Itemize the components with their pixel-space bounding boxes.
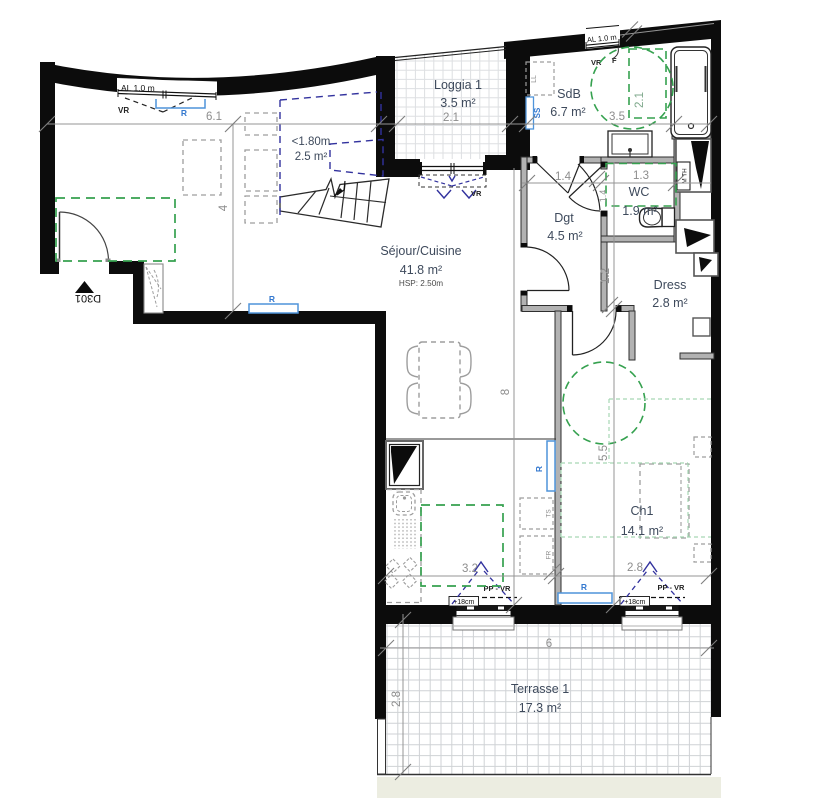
svg-text:3.2: 3.2 bbox=[462, 563, 478, 575]
svg-text:6.7 m²: 6.7 m² bbox=[550, 105, 585, 119]
svg-text:R: R bbox=[181, 108, 187, 118]
svg-text:Loggia 1: Loggia 1 bbox=[434, 78, 482, 92]
svg-text:3.5 m²: 3.5 m² bbox=[440, 96, 475, 110]
svg-text:Séjour/Cuisine: Séjour/Cuisine bbox=[380, 244, 461, 258]
svg-text:1.4: 1.4 bbox=[598, 190, 608, 203]
svg-text:R: R bbox=[534, 466, 544, 472]
svg-text:2.5 m²: 2.5 m² bbox=[295, 151, 328, 163]
svg-text:VR: VR bbox=[471, 189, 482, 198]
svg-text:Dgt: Dgt bbox=[554, 211, 574, 225]
svg-text:+18cm: +18cm bbox=[453, 599, 474, 606]
svg-text:D301: D301 bbox=[75, 292, 101, 304]
svg-text:1.9 m²: 1.9 m² bbox=[622, 204, 657, 218]
svg-text:14.1 m²: 14.1 m² bbox=[621, 524, 663, 538]
svg-text:1.3: 1.3 bbox=[633, 170, 649, 182]
svg-text:4: 4 bbox=[218, 204, 230, 211]
svg-text:FR: FR bbox=[546, 550, 553, 559]
svg-text:PP - VR: PP - VR bbox=[658, 583, 686, 592]
svg-text:R: R bbox=[269, 294, 275, 304]
svg-text:LL: LL bbox=[531, 75, 538, 83]
svg-text:TS: TS bbox=[546, 509, 553, 518]
svg-text:2.8 m²: 2.8 m² bbox=[652, 296, 687, 310]
svg-text:<1.80m: <1.80m bbox=[292, 136, 331, 148]
svg-text:Ch1: Ch1 bbox=[631, 504, 654, 518]
svg-text:2.8: 2.8 bbox=[391, 691, 403, 707]
svg-text:3.5: 3.5 bbox=[609, 111, 625, 123]
svg-text:1.2: 1.2 bbox=[600, 268, 612, 284]
svg-text:SdB: SdB bbox=[557, 87, 581, 101]
svg-text:Terrasse 1: Terrasse 1 bbox=[511, 682, 569, 696]
svg-text:2.1: 2.1 bbox=[443, 112, 459, 124]
svg-text:6.1: 6.1 bbox=[206, 111, 222, 123]
svg-text:1.4: 1.4 bbox=[555, 171, 572, 183]
svg-text:6: 6 bbox=[546, 638, 552, 650]
svg-text:8: 8 bbox=[500, 389, 512, 395]
svg-text:41.8 m²: 41.8 m² bbox=[400, 263, 442, 277]
svg-text:5.5: 5.5 bbox=[598, 445, 610, 461]
svg-text:AL 1.0 m: AL 1.0 m bbox=[121, 83, 155, 93]
svg-text:4.5 m²: 4.5 m² bbox=[547, 229, 582, 243]
svg-text:2.1: 2.1 bbox=[634, 92, 646, 108]
svg-text:VR: VR bbox=[118, 106, 129, 115]
svg-text:WC: WC bbox=[629, 185, 650, 199]
svg-text:R: R bbox=[581, 582, 587, 592]
svg-text:17.3 m²: 17.3 m² bbox=[519, 701, 561, 715]
svg-text:2.8: 2.8 bbox=[627, 562, 643, 574]
svg-text:+18cm: +18cm bbox=[624, 599, 645, 606]
svg-text:Dress: Dress bbox=[654, 278, 687, 292]
svg-text:HSP: 2.50m: HSP: 2.50m bbox=[399, 279, 443, 288]
